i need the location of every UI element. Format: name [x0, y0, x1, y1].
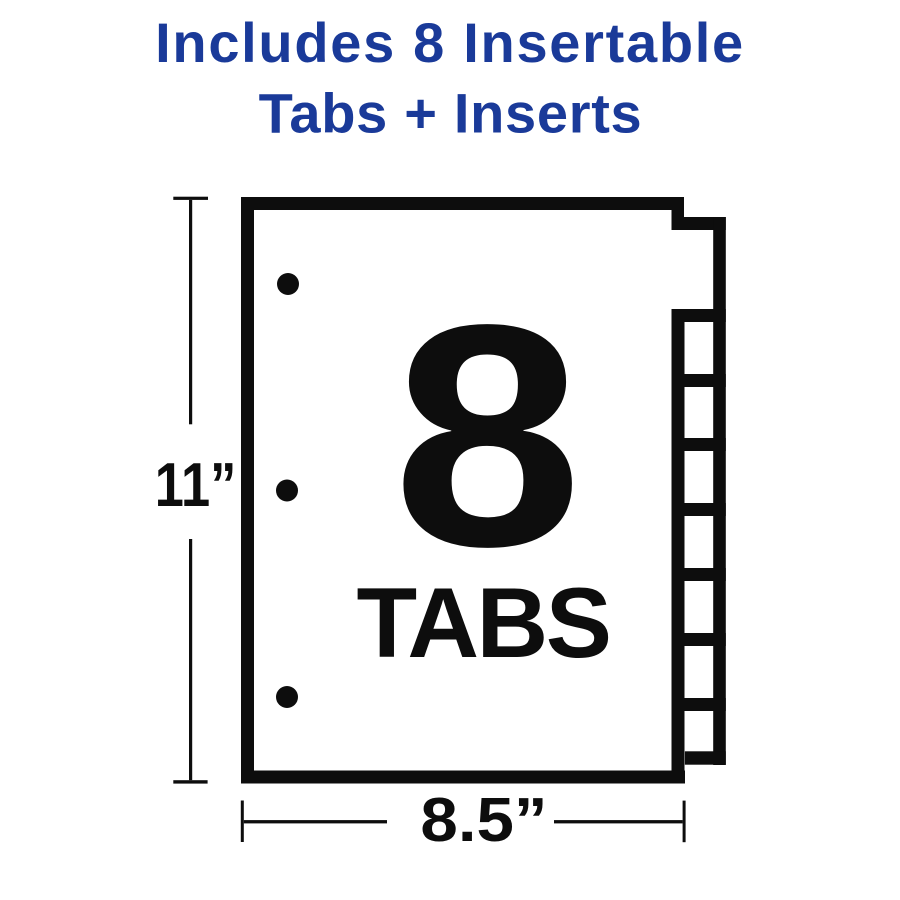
svg-text:11”: 11” [155, 451, 237, 520]
svg-text:Includes 8 Insertable: Includes 8 Insertable [155, 11, 745, 74]
svg-text:Tabs + Inserts: Tabs + Inserts [259, 82, 643, 145]
svg-text:8: 8 [393, 258, 583, 612]
svg-text:TABS: TABS [357, 568, 610, 679]
svg-text:8.5”: 8.5” [420, 784, 547, 854]
